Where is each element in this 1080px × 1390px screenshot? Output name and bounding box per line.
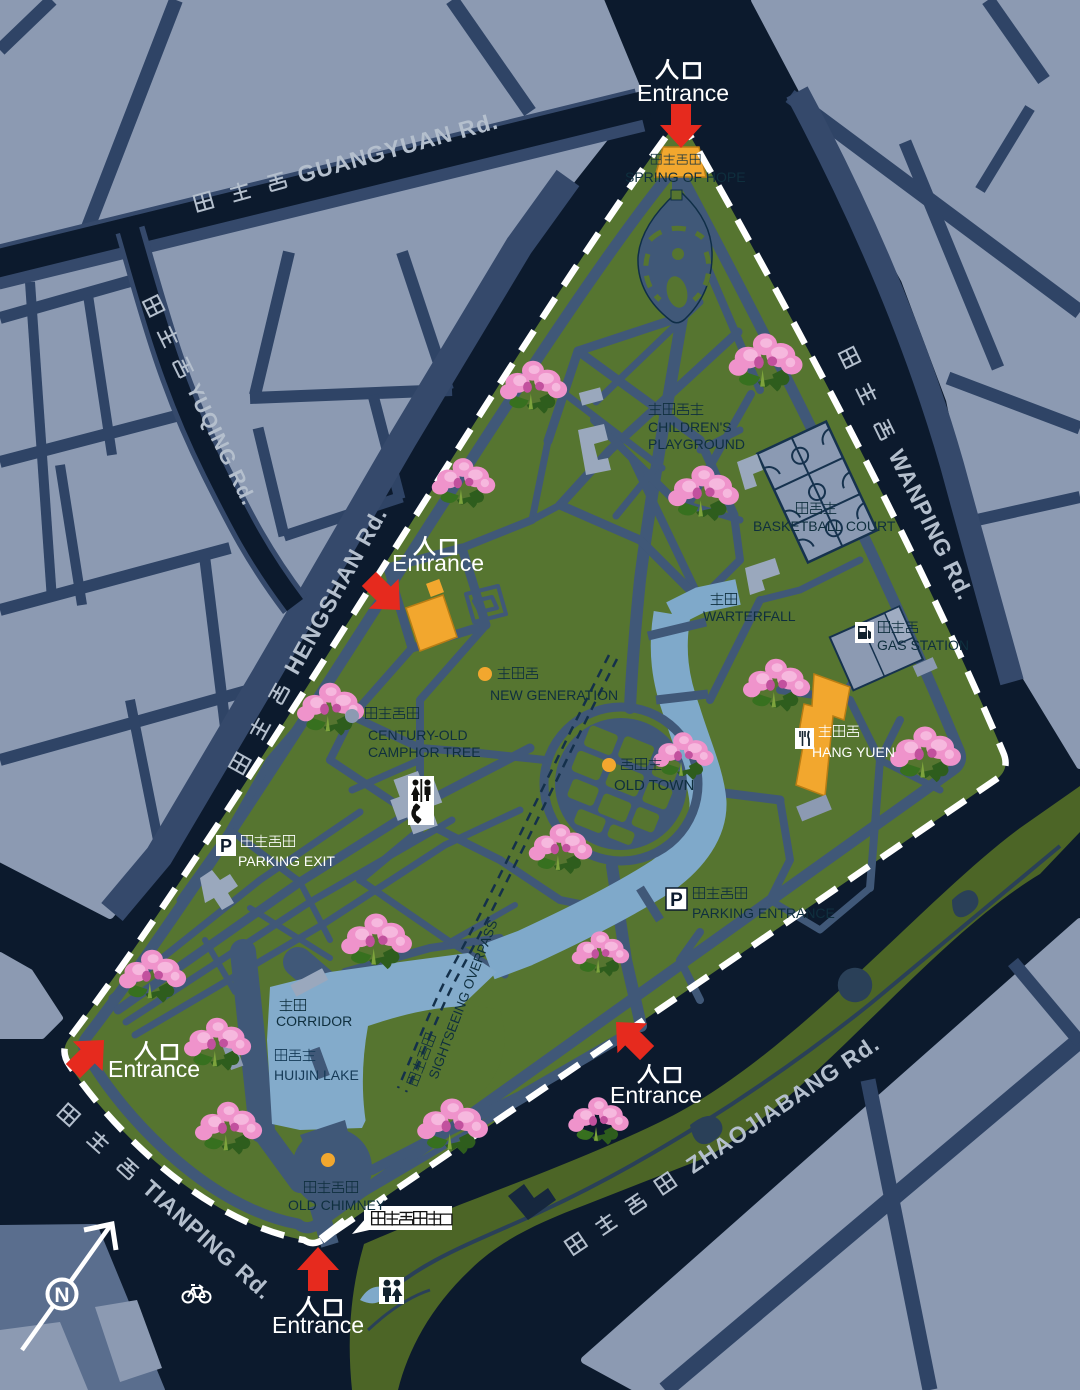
svg-text:SPRING OF HOPE: SPRING OF HOPE	[625, 169, 746, 185]
svg-text:N: N	[54, 1284, 69, 1307]
svg-text:OLD CHIMNEY: OLD CHIMNEY	[288, 1197, 386, 1213]
svg-text:GAS STATION: GAS STATION	[877, 637, 969, 653]
svg-text:CENTURY-OLD: CENTURY-OLD	[368, 727, 468, 743]
svg-text:HUIJIN LAKE: HUIJIN LAKE	[274, 1067, 359, 1083]
svg-text:PARKING EXIT: PARKING EXIT	[238, 853, 335, 869]
svg-text:CORRIDOR: CORRIDOR	[276, 1013, 352, 1029]
svg-text:Entrance: Entrance	[610, 1082, 702, 1108]
svg-text:CAMPHOR TREE: CAMPHOR TREE	[368, 744, 481, 760]
svg-text:Entrance: Entrance	[637, 80, 729, 106]
svg-text:WARTERFALL: WARTERFALL	[703, 608, 796, 624]
svg-text:NEW GENERATION: NEW GENERATION	[490, 687, 618, 703]
svg-text:Entrance: Entrance	[392, 550, 484, 576]
svg-text:P: P	[670, 890, 683, 911]
svg-text:HANG YUEN: HANG YUEN	[812, 744, 895, 760]
svg-text:CHILDREN'S: CHILDREN'S	[648, 419, 732, 435]
svg-text:PLAYGROUND: PLAYGROUND	[648, 436, 745, 452]
svg-text:PARKING ENTRANCE: PARKING ENTRANCE	[692, 905, 835, 921]
svg-text:OLD TOWN: OLD TOWN	[614, 777, 694, 794]
svg-text:Entrance: Entrance	[272, 1312, 364, 1338]
svg-text:P: P	[220, 836, 232, 856]
svg-text:Entrance: Entrance	[108, 1056, 200, 1082]
svg-text:BASKETBALL COURT: BASKETBALL COURT	[753, 518, 896, 534]
